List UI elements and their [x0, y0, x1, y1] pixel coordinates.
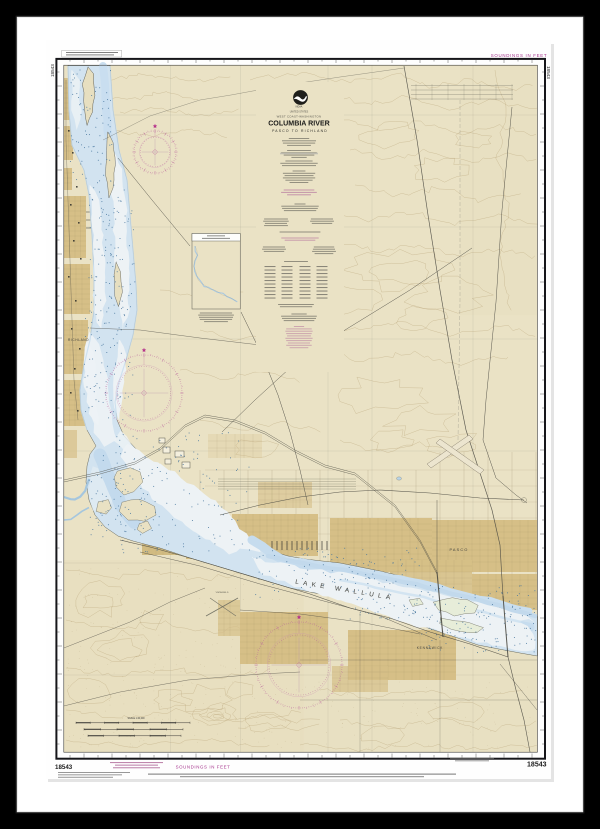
- svg-text:RICHLAND: RICHLAND: [68, 338, 89, 342]
- svg-text:WEST COAST-WASHINGTON: WEST COAST-WASHINGTON: [277, 115, 322, 119]
- svg-text:VISTA FIELD: VISTA FIELD: [216, 591, 229, 594]
- svg-text:PASCO: PASCO: [449, 548, 468, 552]
- svg-text:COLUMBIA RIVER: COLUMBIA RIVER: [268, 120, 330, 128]
- svg-text:KENNEWICK: KENNEWICK: [417, 646, 444, 650]
- svg-text:UNITED STATES: UNITED STATES: [290, 111, 309, 114]
- svg-text:18543: 18543: [527, 762, 547, 769]
- svg-text:18543: 18543: [55, 764, 73, 771]
- svg-text:SOUNDINGS IN FEET: SOUNDINGS IN FEET: [176, 765, 231, 770]
- svg-text:SOUNDINGS IN FEET: SOUNDINGS IN FEET: [491, 53, 548, 58]
- svg-text:18543: 18543: [50, 64, 55, 77]
- svg-text:PASCO TO RICHLAND: PASCO TO RICHLAND: [272, 129, 328, 133]
- svg-text:SCALE 1:40,000: SCALE 1:40,000: [127, 717, 145, 720]
- svg-text:18543: 18543: [546, 66, 551, 79]
- svg-text:NOAA: NOAA: [296, 106, 303, 109]
